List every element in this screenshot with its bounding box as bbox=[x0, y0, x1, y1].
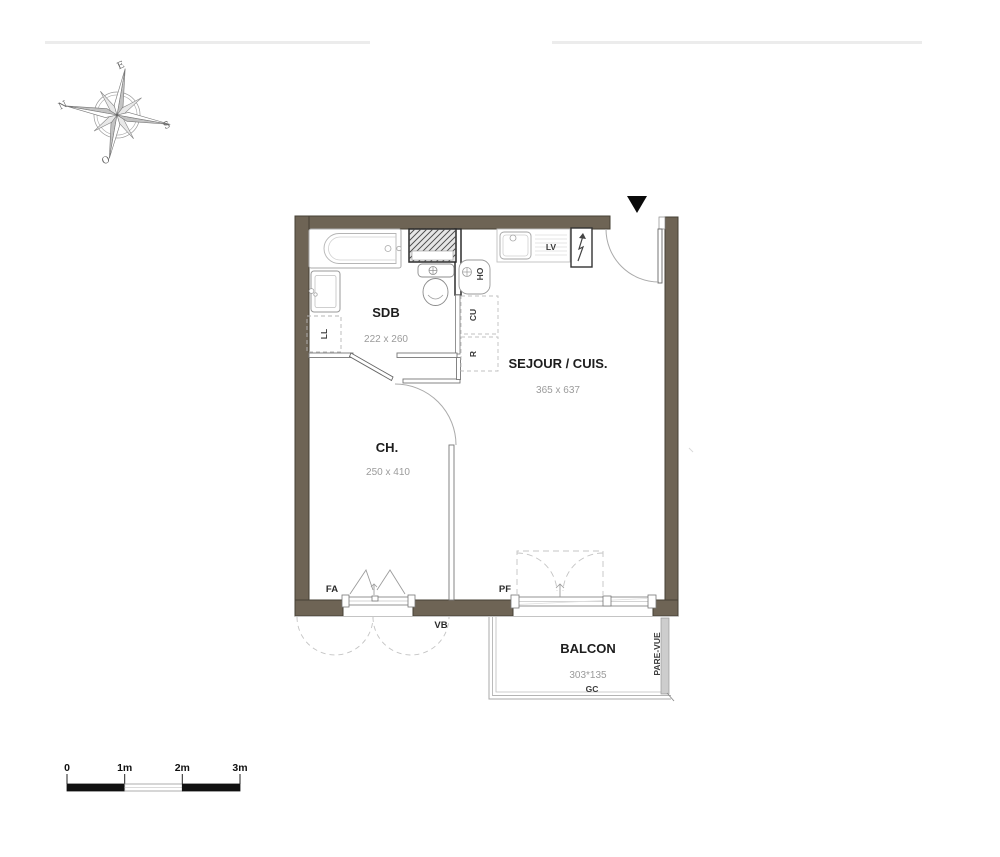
water-heater-label: HO bbox=[475, 267, 485, 280]
ch-door-swing bbox=[395, 384, 456, 445]
washing-machine-zone: LL bbox=[307, 316, 341, 352]
room-label-ch: CH. bbox=[376, 440, 398, 455]
toilet bbox=[418, 264, 454, 306]
wall-bottom-middle bbox=[413, 600, 513, 616]
wall-bottom-left bbox=[295, 600, 343, 616]
header-rule-left bbox=[45, 41, 370, 44]
room-dim-sejour: 365 x 637 bbox=[536, 385, 580, 396]
kitchen-counter: LV bbox=[497, 229, 570, 262]
balcony: BALCON 303*135 GC PARE-VUE bbox=[489, 617, 674, 701]
partition-sdb-south-b bbox=[397, 353, 457, 358]
electrical-panel bbox=[571, 228, 592, 267]
header-rule-right bbox=[552, 41, 922, 44]
compass-north-label: N bbox=[57, 99, 69, 112]
water-heater: HO bbox=[459, 260, 490, 294]
compass-main-points bbox=[58, 60, 178, 168]
entrance-door-leaf bbox=[658, 229, 662, 283]
cooktop-label: CU bbox=[468, 309, 478, 321]
bathtub-drain bbox=[385, 246, 391, 252]
window-pf-label: PF bbox=[499, 584, 511, 595]
scale-tick-1m: 1m bbox=[117, 762, 132, 774]
duct-shaft bbox=[409, 229, 456, 262]
shutter-vb-label: VB bbox=[434, 620, 447, 631]
scale-ticks bbox=[67, 774, 240, 784]
partition-sdb-lower bbox=[456, 295, 461, 354]
scale-bar: 0 1m 2m 3m bbox=[64, 762, 248, 791]
cooktop-zone: CU bbox=[461, 296, 498, 334]
room-label-sdb: SDB bbox=[372, 305, 399, 320]
kitchen-tap bbox=[510, 235, 516, 241]
fridge-zone: R bbox=[461, 337, 498, 371]
wall-right bbox=[665, 217, 678, 616]
entrance-door-jamb bbox=[659, 217, 665, 229]
partition-ch-sejour bbox=[449, 445, 454, 600]
scale-tick-0: 0 bbox=[64, 762, 70, 774]
partition-niche bbox=[403, 379, 460, 383]
room-dim-ch: 250 x 410 bbox=[366, 467, 410, 478]
compass-rose: E N S O bbox=[57, 59, 178, 167]
washing-machine-label: LL bbox=[319, 329, 329, 339]
wall-top bbox=[295, 216, 610, 229]
privacy-screen bbox=[661, 618, 669, 694]
room-label-sejour: SEJOUR / CUIS. bbox=[509, 356, 608, 371]
wall-bottom-right bbox=[653, 600, 678, 616]
balcony-gc-label: GC bbox=[586, 684, 599, 694]
scale-tick-2m: 2m bbox=[175, 762, 190, 774]
room-dim-balcon: 303*135 bbox=[569, 670, 607, 681]
shutter-swing-left bbox=[297, 617, 373, 655]
bathtub bbox=[309, 229, 401, 268]
room-label-balcon: BALCON bbox=[560, 641, 616, 656]
sdb-door-leaf bbox=[350, 353, 394, 381]
privacy-screen-label: PARE-VUE bbox=[652, 632, 662, 676]
wall-left bbox=[295, 216, 309, 616]
window-pf: PF bbox=[499, 551, 656, 608]
entrance-door bbox=[606, 217, 665, 283]
bathtub-tap bbox=[397, 246, 401, 250]
floor-plan: E N S O bbox=[0, 0, 1000, 857]
stray-mark bbox=[689, 448, 693, 452]
compass-south-label: S bbox=[162, 119, 173, 132]
room-dim-sdb: 222 x 260 bbox=[364, 334, 408, 345]
fridge-label: R bbox=[468, 351, 478, 357]
entrance-marker-icon bbox=[627, 196, 647, 213]
vanity-sink bbox=[309, 271, 340, 312]
partition-niche-side bbox=[457, 358, 461, 380]
scale-tick-3m: 3m bbox=[232, 762, 247, 774]
entrance-door-swing bbox=[606, 229, 659, 282]
partition-sdb-south-a bbox=[309, 353, 353, 358]
window-fa-label: FA bbox=[326, 584, 338, 595]
dishwasher-label: LV bbox=[546, 242, 557, 252]
